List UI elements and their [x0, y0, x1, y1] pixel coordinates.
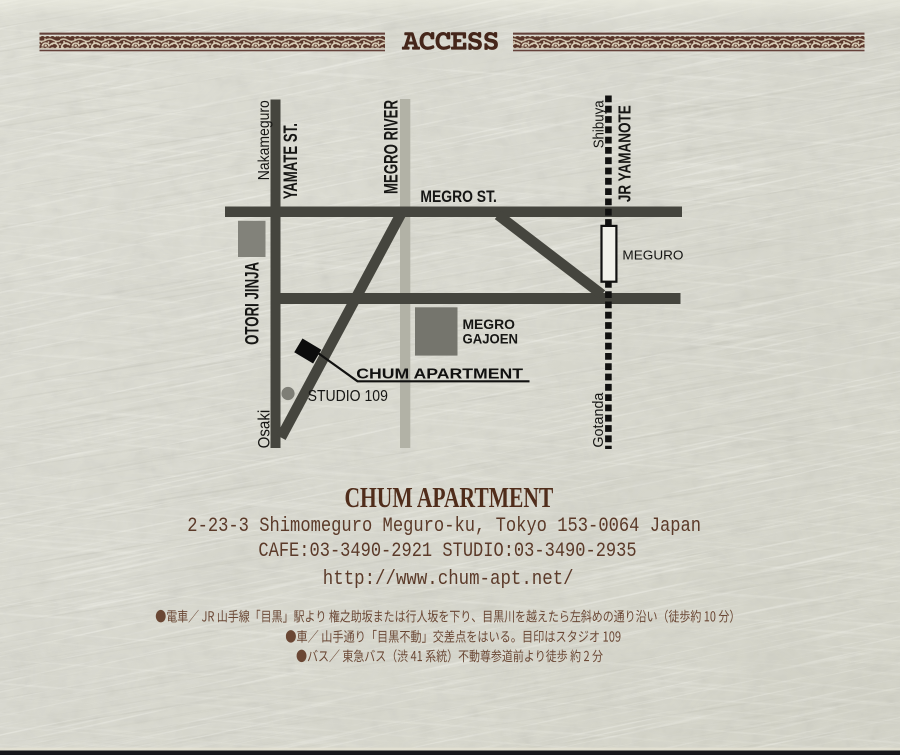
- svg-text:JR YAMANOTE: JR YAMANOTE: [614, 105, 634, 202]
- svg-text:MEGURO: MEGURO: [622, 249, 683, 263]
- svg-text:Nakameguro: Nakameguro: [256, 100, 273, 180]
- svg-text:2-23-3 Shimomeguro Meguro-ku,: 2-23-3 Shimomeguro Meguro-ku, Tokyo 153-…: [187, 515, 701, 538]
- svg-text:http://www.chum-apt.net/: http://www.chum-apt.net/: [323, 568, 574, 591]
- svg-text:OTORI JINJA: OTORI JINJA: [242, 262, 263, 345]
- svg-text:GAJOEN: GAJOEN: [463, 330, 519, 346]
- svg-text:Shibuya: Shibuya: [591, 100, 608, 148]
- svg-text:MEGRO RIVER: MEGRO RIVER: [381, 100, 402, 194]
- svg-text:YAMATE ST.: YAMATE ST.: [281, 123, 302, 199]
- svg-text:Gotanda: Gotanda: [590, 392, 607, 448]
- svg-text:Osaki: Osaki: [254, 410, 273, 449]
- svg-text:CHUM APARTMENT: CHUM APARTMENT: [345, 482, 554, 514]
- svg-text:CAFE:03-3490-2921 STUDIO:03-3: CAFE:03-3490-2921 STUDIO:03-3490-2935: [258, 540, 636, 563]
- svg-text:STUDIO 109: STUDIO 109: [308, 388, 388, 405]
- svg-text:MEGRO ST.: MEGRO ST.: [420, 187, 497, 206]
- svg-text:CHUM APARTMENT: CHUM APARTMENT: [356, 366, 523, 383]
